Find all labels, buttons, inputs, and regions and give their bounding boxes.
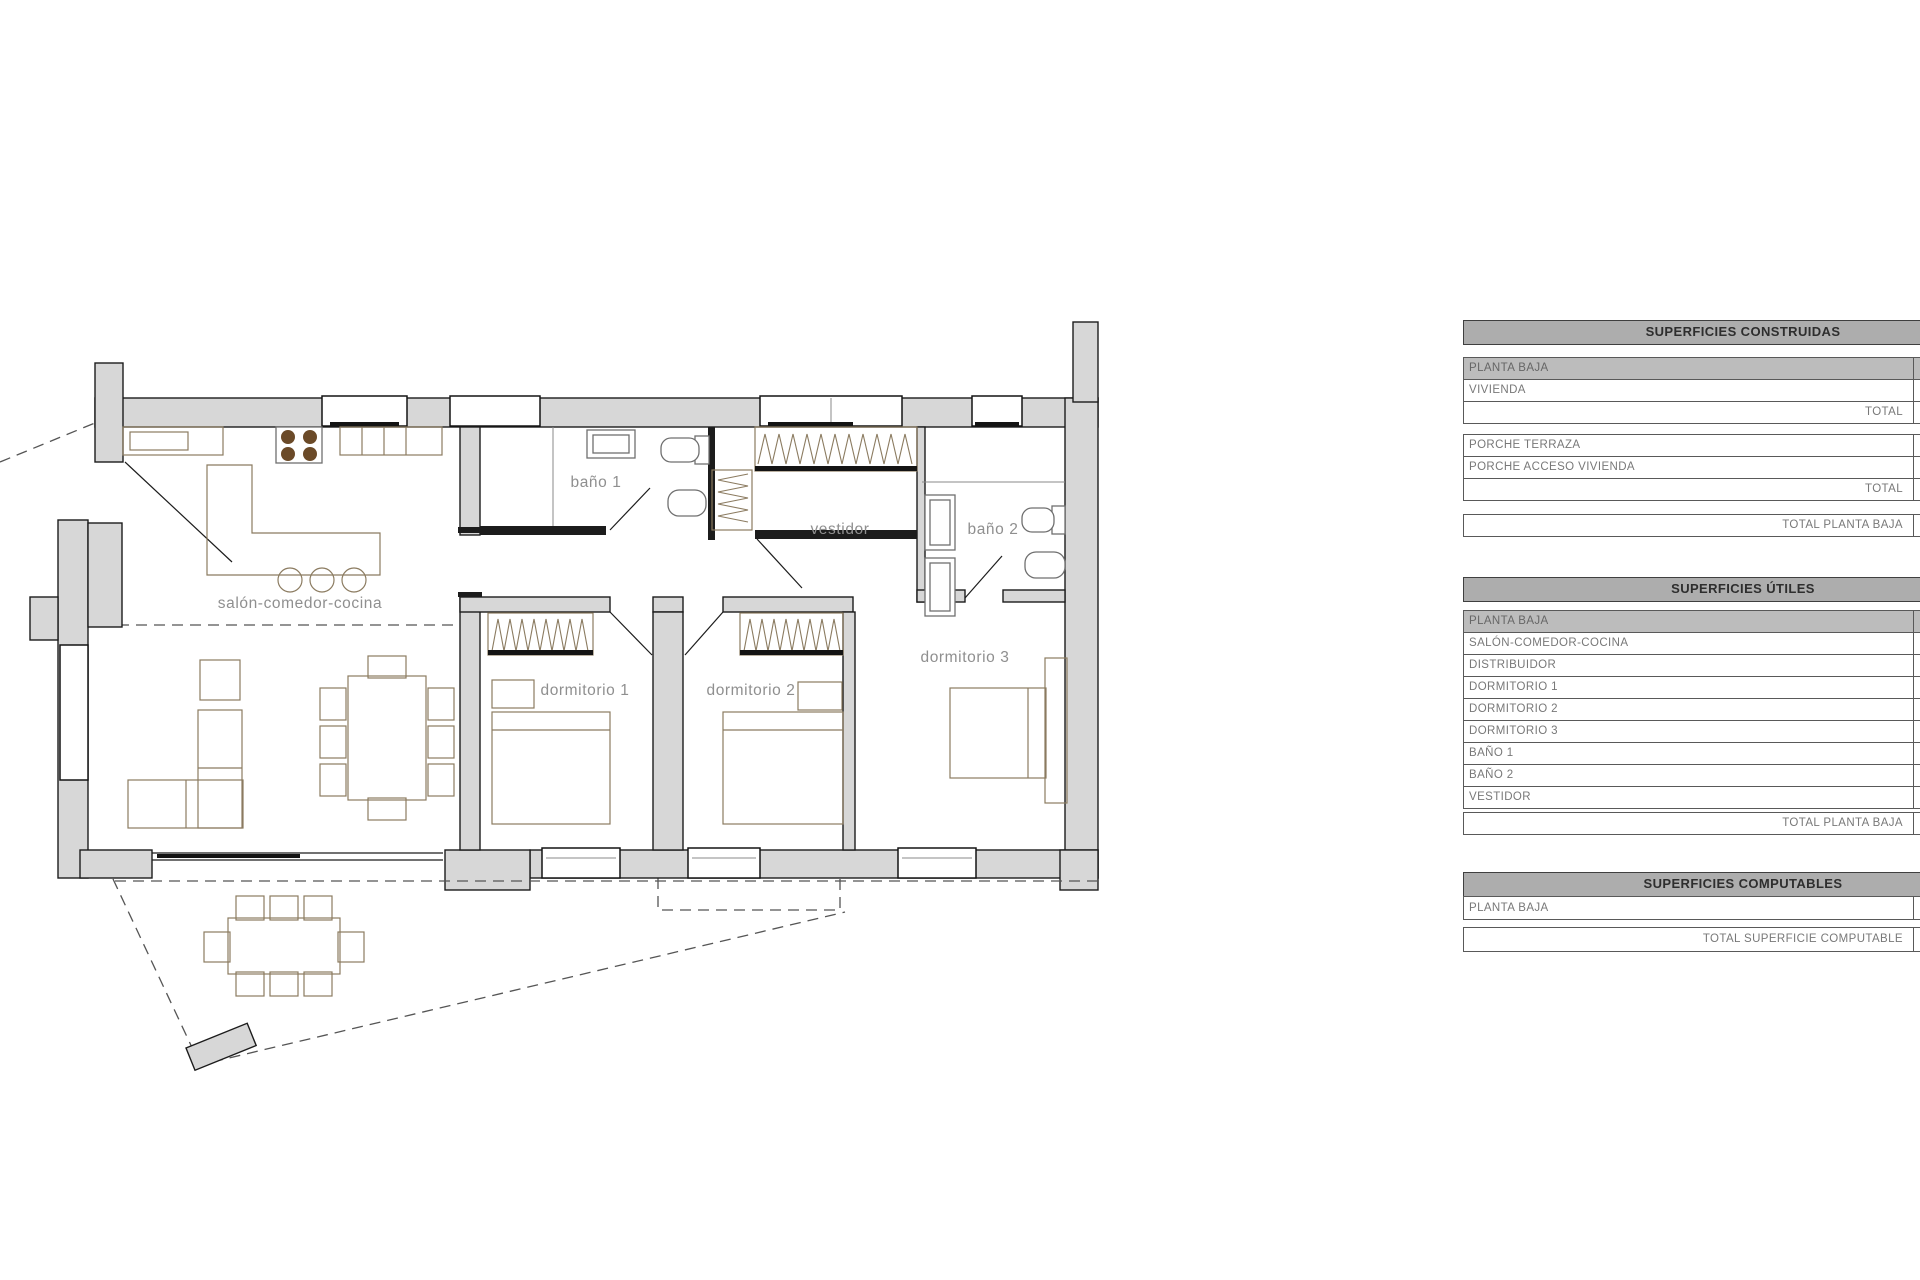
table-title: SUPERFICIES ÚTILES (1463, 577, 1920, 602)
vestidor-wardrobe (712, 427, 917, 530)
row-label: DORMITORIO 2 (1464, 699, 1914, 720)
table-row: TOTAL (1463, 401, 1920, 424)
label-dorm3: dormitorio 3 (920, 649, 1009, 666)
row-label: BAÑO 2 (1464, 765, 1914, 786)
label-vestidor: vestidor (810, 521, 869, 538)
table-row: PLANTA BAJA (1463, 357, 1920, 380)
room-labels: salón-comedor-cocina baño 1 vestidor bañ… (218, 474, 1019, 699)
sofa (128, 660, 243, 828)
table-row: TOTAL (1463, 478, 1920, 501)
table-row: DORMITORIO 3 (1463, 720, 1920, 743)
row-label: DORMITORIO 1 (1464, 677, 1914, 698)
label-salon: salón-comedor-cocina (218, 595, 383, 612)
row-label: SALÓN-COMEDOR-COCINA (1464, 633, 1914, 654)
row-label: TOTAL (1464, 402, 1914, 423)
stove-icon (276, 427, 322, 463)
row-label: TOTAL SUPERFICIE COMPUTABLE (1464, 928, 1914, 951)
table-row: DORMITORIO 2 (1463, 698, 1920, 721)
row-label: TOTAL (1464, 479, 1914, 500)
table-superficies-utiles: SUPERFICIES ÚTILES PLANTA BAJA SALÓN-COM… (1463, 577, 1920, 835)
table-superficies-computables: SUPERFICIES COMPUTABLES PLANTA BAJA TOTA… (1463, 872, 1920, 952)
terrace-table (204, 896, 364, 996)
label-bano2: baño 2 (967, 521, 1018, 538)
bedroom1-furniture (488, 613, 610, 824)
table-row-total: TOTAL SUPERFICIE COMPUTABLE (1463, 927, 1920, 952)
row-label: TOTAL PLANTA BAJA (1464, 813, 1914, 834)
sliding-glass-doors (152, 853, 443, 860)
table-row-total: TOTAL PLANTA BAJA (1463, 812, 1920, 835)
dining-table (320, 656, 454, 820)
row-label: VIVIENDA (1464, 380, 1914, 401)
page: { "plan": { "room_labels": { "salon": "s… (0, 0, 1920, 1280)
table-row: DISTRIBUIDOR (1463, 654, 1920, 677)
site-boundary-dashed-lines (0, 418, 845, 1062)
door-swings (125, 462, 1002, 655)
table-row: PLANTA BAJA (1463, 896, 1920, 920)
label-bano1: baño 1 (570, 474, 621, 491)
table-row: VIVIENDA (1463, 379, 1920, 402)
label-dorm2: dormitorio 2 (706, 682, 795, 699)
row-label: DORMITORIO 3 (1464, 721, 1914, 742)
row-label: PLANTA BAJA (1464, 897, 1914, 919)
row-label: PORCHE ACCESO VIVIENDA (1464, 457, 1914, 478)
row-label: PLANTA BAJA (1464, 358, 1914, 379)
table-row: BAÑO 1 (1463, 742, 1920, 765)
island-stools (278, 568, 366, 592)
table-row: PORCHE TERRAZA (1463, 434, 1920, 457)
bedroom3-furniture (950, 658, 1067, 803)
table-row: PLANTA BAJA (1463, 610, 1920, 633)
row-label: VESTIDOR (1464, 787, 1914, 808)
table-title: SUPERFICIES CONSTRUIDAS (1463, 320, 1920, 345)
row-label: TOTAL PLANTA BAJA (1464, 515, 1914, 536)
terrace-step (186, 1023, 256, 1070)
row-label: BAÑO 1 (1464, 743, 1914, 764)
table-row: VESTIDOR (1463, 786, 1920, 809)
table-row: DORMITORIO 1 (1463, 676, 1920, 699)
bedroom2-furniture (723, 613, 843, 824)
table-superficies-construidas: SUPERFICIES CONSTRUIDAS PLANTA BAJA VIVI… (1463, 320, 1920, 537)
table-row-total: TOTAL PLANTA BAJA (1463, 514, 1920, 537)
interior-walls (458, 427, 1065, 850)
row-label: PLANTA BAJA (1464, 611, 1914, 632)
label-dorm1: dormitorio 1 (540, 682, 629, 699)
table-row: SALÓN-COMEDOR-COCINA (1463, 632, 1920, 655)
row-label: DISTRIBUIDOR (1464, 655, 1914, 676)
bathroom1-fixtures (587, 430, 709, 516)
table-row: BAÑO 2 (1463, 764, 1920, 787)
table-row: PORCHE ACCESO VIVIENDA (1463, 456, 1920, 479)
row-label: PORCHE TERRAZA (1464, 435, 1914, 456)
table-title: SUPERFICIES COMPUTABLES (1463, 872, 1920, 897)
